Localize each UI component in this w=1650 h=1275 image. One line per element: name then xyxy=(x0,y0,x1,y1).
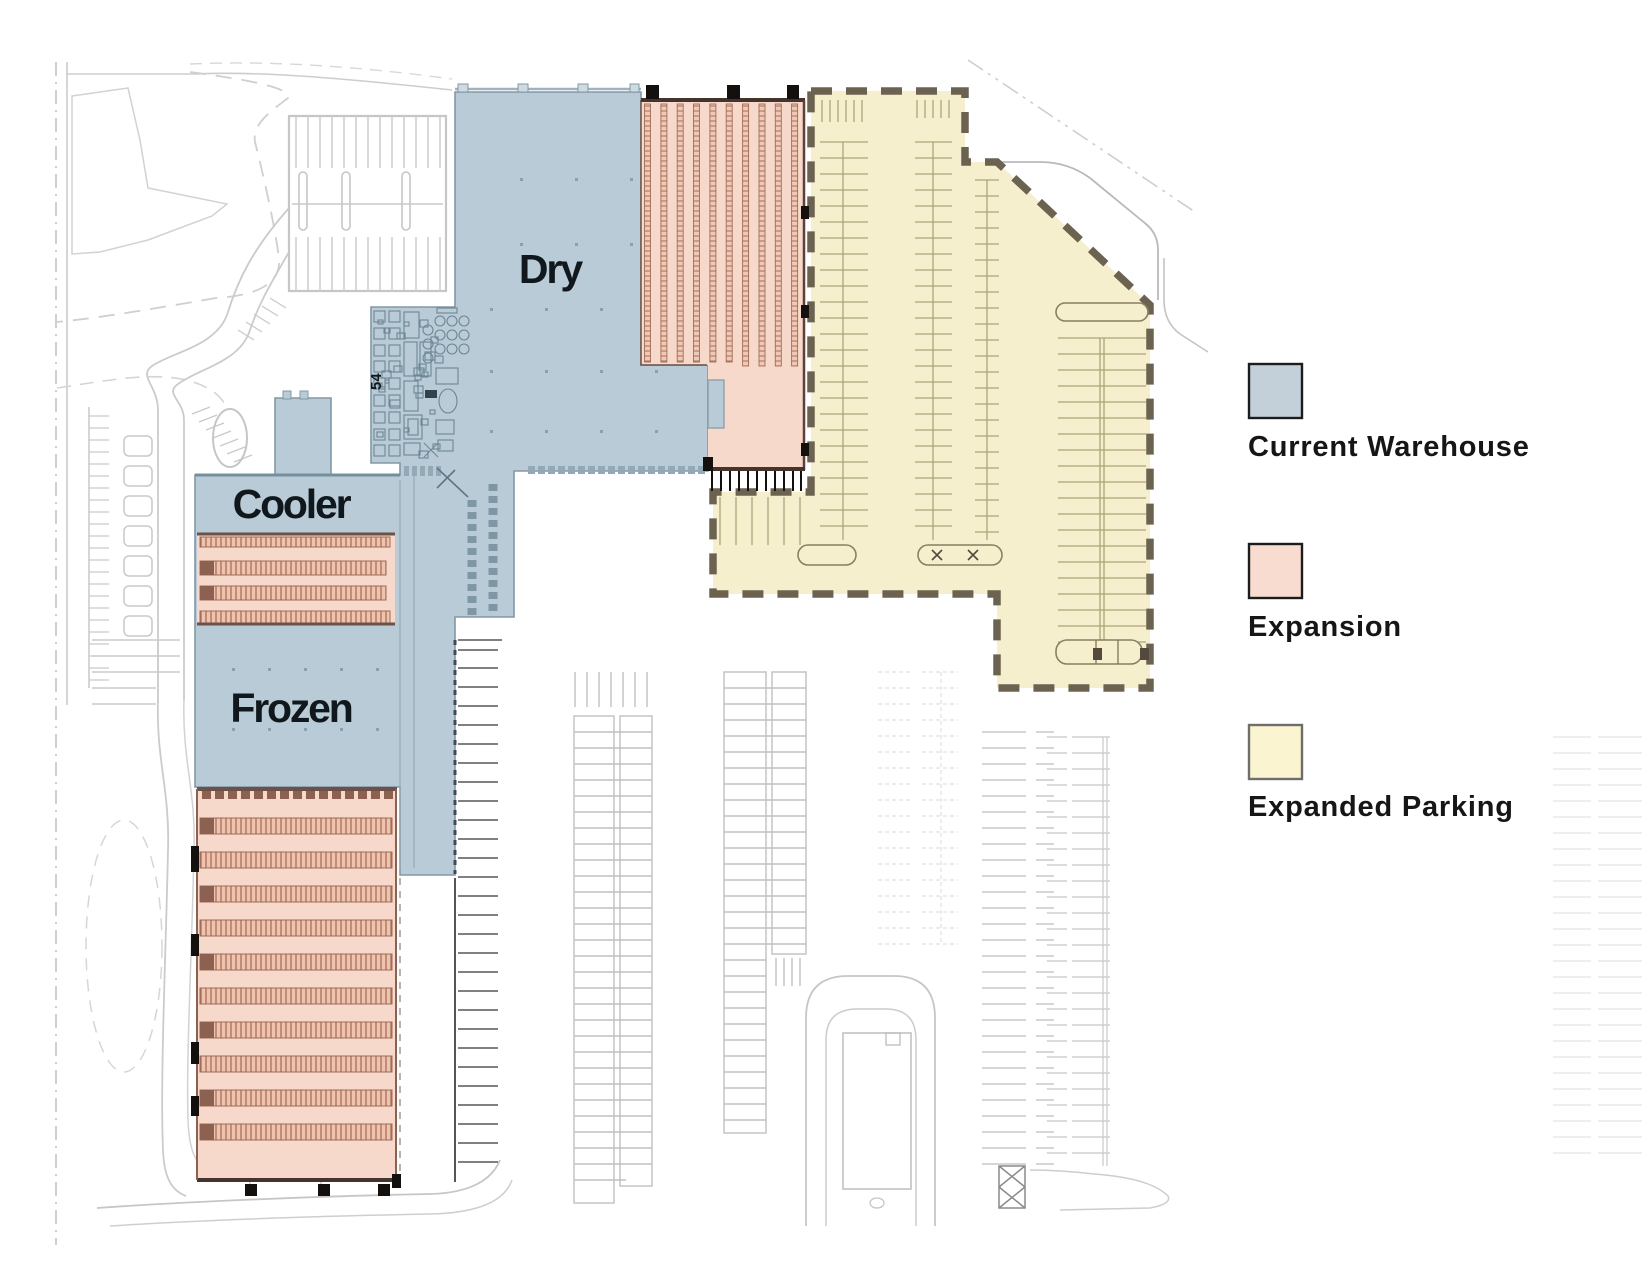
svg-text:Expansion: Expansion xyxy=(1248,611,1402,643)
svg-text:54: 54 xyxy=(368,373,385,390)
svg-text:Frozen: Frozen xyxy=(230,685,351,731)
svg-text:Cooler: Cooler xyxy=(233,481,352,527)
svg-text:Expanded Parking: Expanded Parking xyxy=(1248,791,1514,823)
svg-text:Current Warehouse: Current Warehouse xyxy=(1248,431,1530,463)
svg-text:Dry: Dry xyxy=(519,246,584,292)
